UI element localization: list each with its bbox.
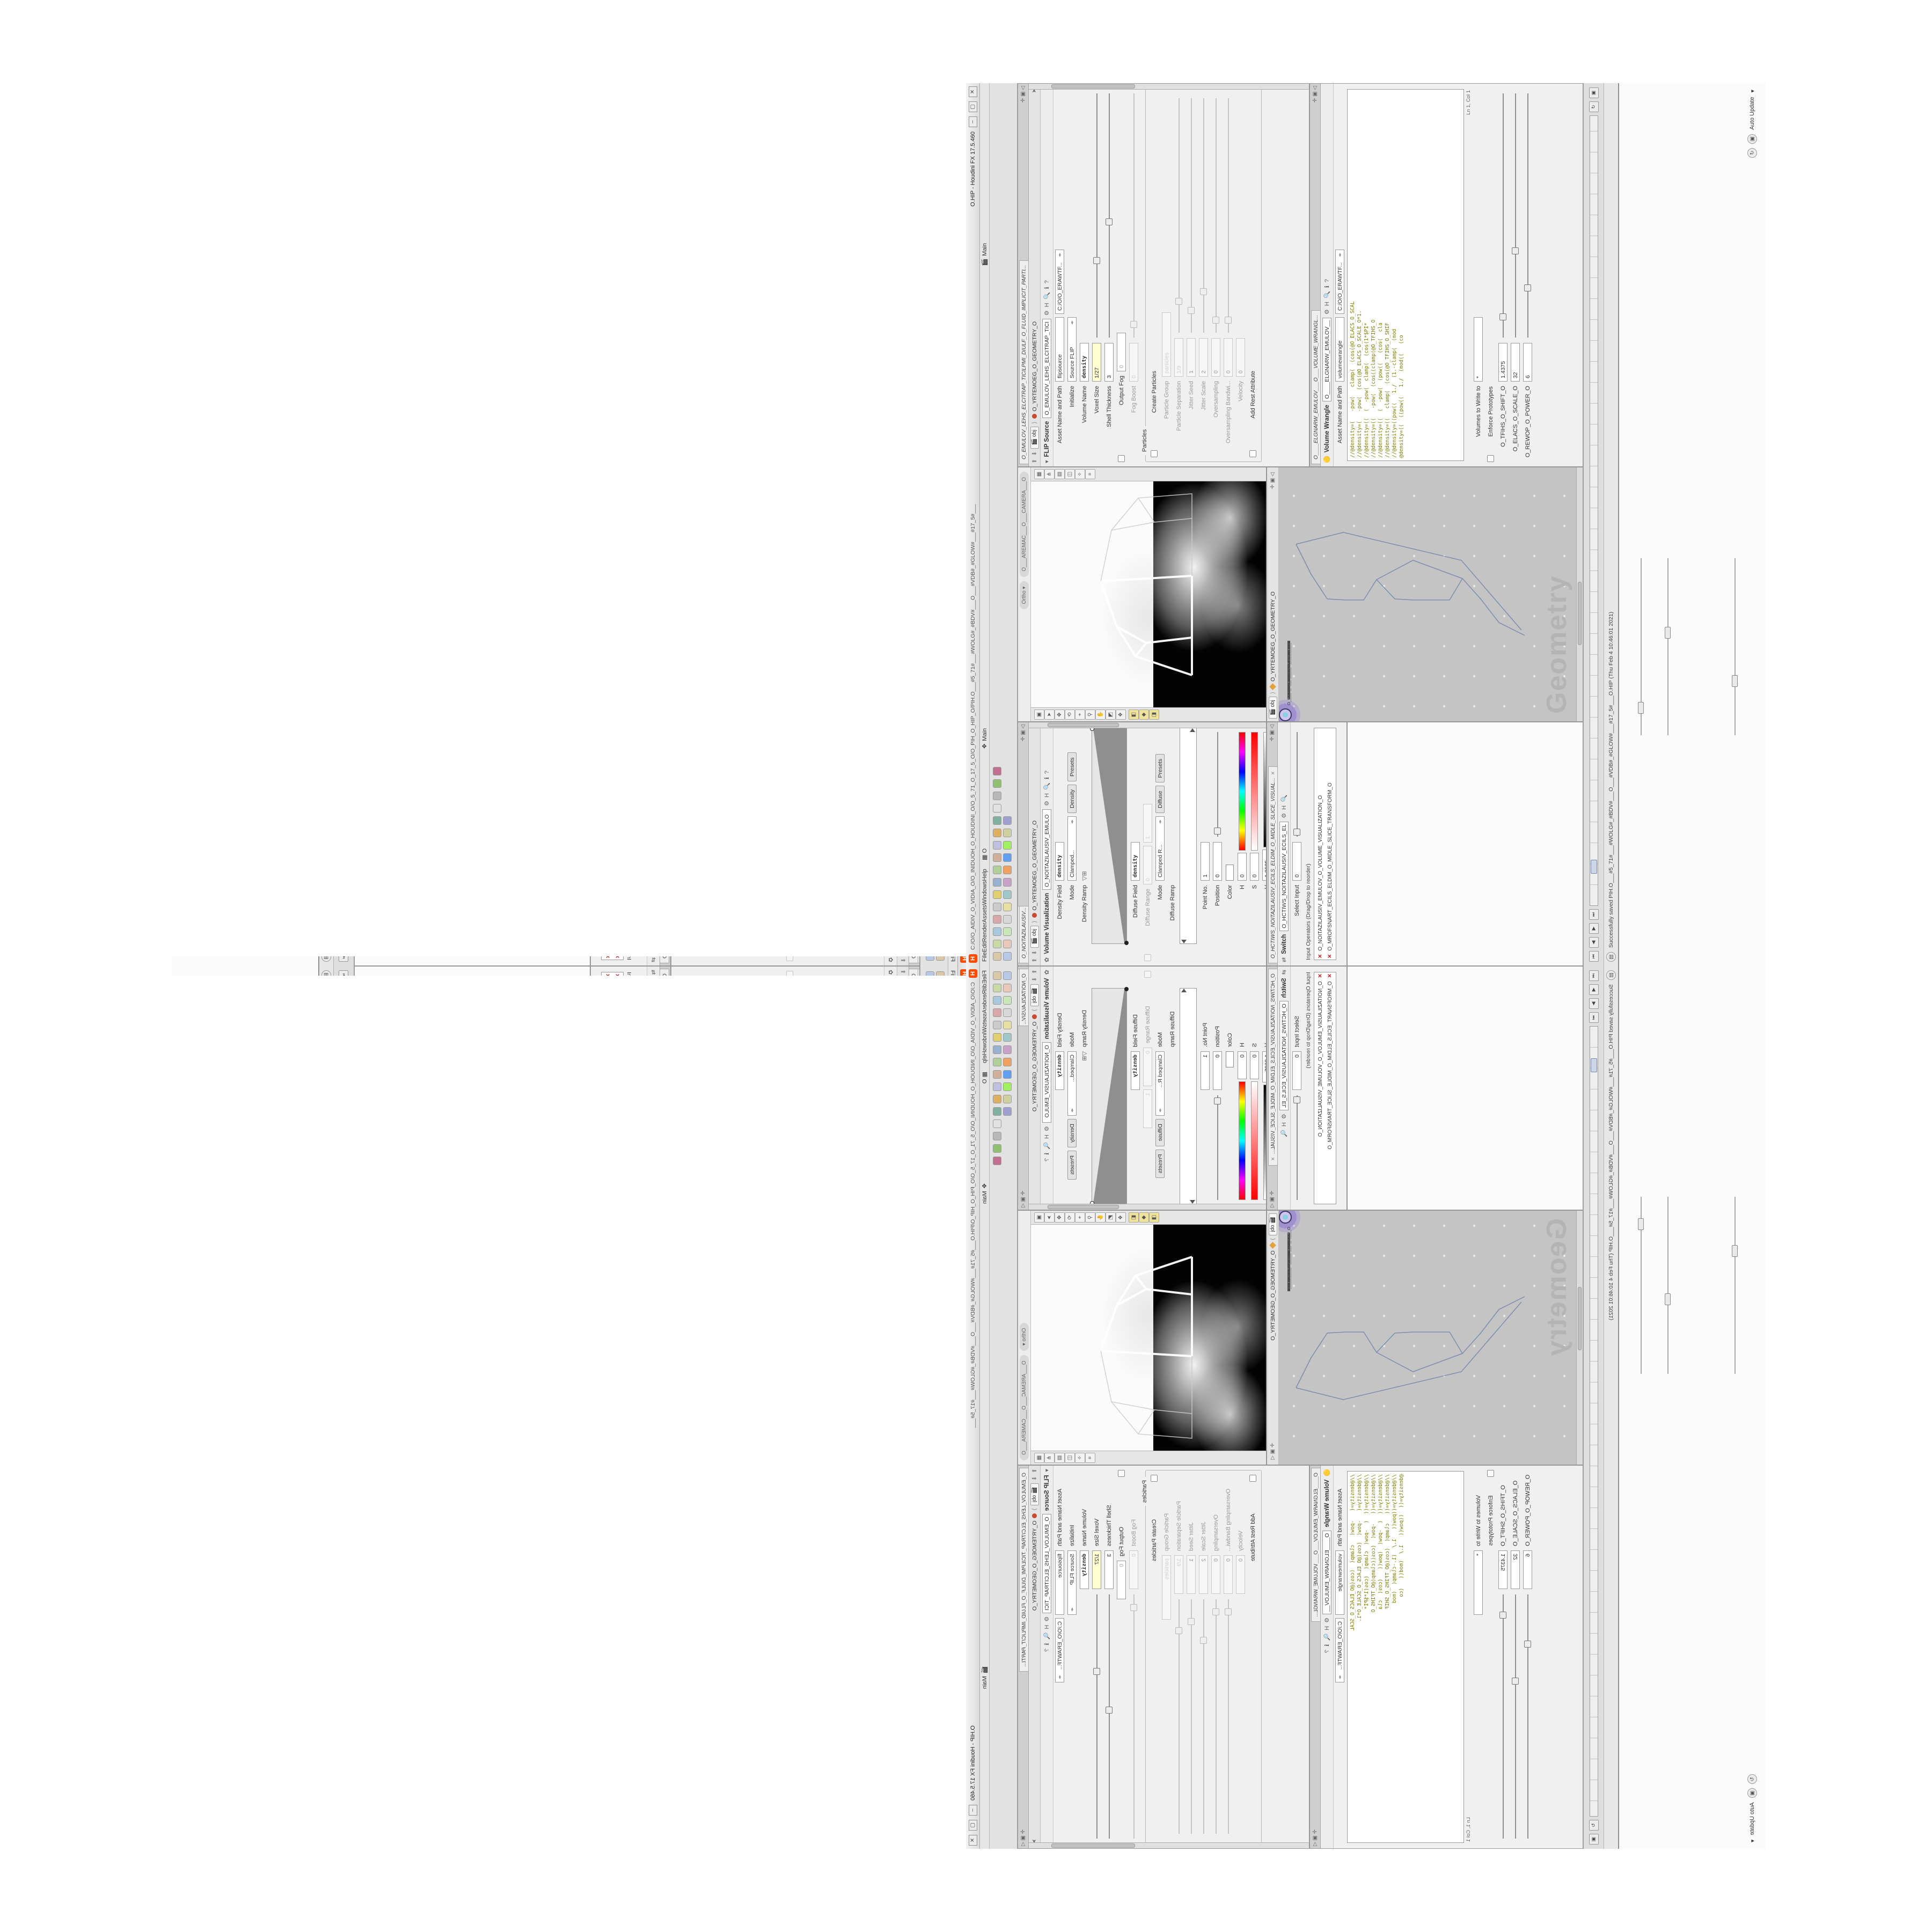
shelf-tool-icon[interactable] bbox=[1003, 866, 1012, 874]
info-icon[interactable]: ℹ bbox=[1043, 1153, 1050, 1155]
ramp-marker[interactable] bbox=[1181, 989, 1187, 992]
display-option-icon[interactable]: ◫ bbox=[1065, 1453, 1075, 1463]
gear-icon[interactable]: ⚙ bbox=[1280, 1114, 1287, 1119]
help-icon[interactable]: ? bbox=[1044, 1158, 1050, 1161]
shelf-tool-icon[interactable] bbox=[1003, 878, 1012, 887]
param-slider[interactable] bbox=[1092, 1594, 1102, 1839]
camera-pill[interactable]: O___AREMAC___O___CAMERA___O bbox=[1020, 1355, 1029, 1460]
breadcrumb-root[interactable]: 🎬obj bbox=[1030, 926, 1039, 948]
diffuse-field-input[interactable]: density bbox=[1131, 1051, 1140, 1090]
shading-mode-icon[interactable]: ◧ bbox=[1129, 709, 1139, 720]
param-input[interactable]: 6 bbox=[1523, 1550, 1532, 1589]
frame-handle[interactable] bbox=[1591, 1058, 1597, 1072]
param-input[interactable]: 0 bbox=[1224, 1555, 1233, 1594]
pane-tab[interactable]: O____ELGNARW_EMULOV___O___VOLUME_WRANGL.… bbox=[1311, 1468, 1320, 1622]
shelf-tool-icon[interactable] bbox=[936, 956, 945, 961]
help-icon[interactable]: ? bbox=[1324, 279, 1330, 282]
pane-controls[interactable]: ✛ ▣ ◁ bbox=[1018, 722, 1028, 743]
search-icon[interactable]: 🔍 bbox=[1280, 1130, 1287, 1137]
pane-controls[interactable]: ✛ ▣ ◁ bbox=[1310, 1827, 1320, 1848]
shelf-tool-icon[interactable] bbox=[993, 996, 1001, 1005]
network-node[interactable]: O_MROFSNART_TLUSER_O_RESULT_TRANSFORM_O bbox=[1279, 708, 1292, 721]
list-item[interactable]: ✕O_MROFSNART_ECILS_ELDIM_O_MIDLE_SLICE_T… bbox=[1325, 974, 1335, 1203]
pane-controls[interactable]: ✛ ▣ ◁ bbox=[1018, 1189, 1028, 1210]
breadcrumb[interactable]: O_YRTEMOEG_O_GEOMETRY_O bbox=[1031, 1521, 1038, 1611]
param-input[interactable]: 1/9 bbox=[1174, 1555, 1183, 1594]
remove-icon[interactable]: ✕ bbox=[1318, 974, 1323, 978]
param-input[interactable]: 0 bbox=[1236, 338, 1245, 377]
param-checkbox[interactable] bbox=[1249, 1475, 1256, 1482]
list-item[interactable]: ✕O_NOITAZILAUSIV_EMULOV_O_VOLUME_VISUALI… bbox=[1315, 729, 1325, 958]
nav-fwd-icon[interactable]: ⬇ bbox=[1031, 1476, 1038, 1481]
shelf-tool-icon[interactable] bbox=[993, 841, 1001, 850]
viewport-tool-icon[interactable]: ⌖ bbox=[1075, 709, 1085, 720]
bg-slider-track[interactable] bbox=[1667, 558, 1668, 735]
param-slider[interactable] bbox=[1174, 98, 1184, 333]
pane-scrollbar[interactable] bbox=[1029, 722, 1266, 728]
shelf-tool-icon[interactable] bbox=[993, 1119, 1001, 1128]
shading-mode-icon[interactable]: ◧ bbox=[1129, 1212, 1139, 1223]
nav-back-icon[interactable]: ⬆ bbox=[1031, 1468, 1038, 1473]
hue-input[interactable]: 0 bbox=[1238, 1051, 1247, 1079]
viewport-tool-icon[interactable]: ⚲ bbox=[1085, 1212, 1095, 1223]
pane-tab[interactable]: O_NOITAZILAUSIV...✕ bbox=[1019, 906, 1028, 963]
param-input[interactable]: 0 bbox=[1211, 338, 1220, 377]
nav-back-icon[interactable]: ⬆ bbox=[1031, 459, 1038, 464]
bg-slider-track[interactable] bbox=[1667, 1197, 1668, 1374]
pane-controls[interactable]: ✛ ▣ ◁ bbox=[1267, 470, 1278, 491]
expand-icon[interactable]: ⊞ bbox=[1081, 871, 1088, 876]
hue-slider[interactable] bbox=[1239, 1081, 1246, 1200]
shelf-tool-icon[interactable] bbox=[926, 956, 934, 961]
viewport-tool-icon[interactable]: ➤ bbox=[1044, 709, 1055, 720]
bg-slider-handle[interactable] bbox=[1665, 627, 1671, 639]
ramp-marker[interactable] bbox=[1190, 728, 1195, 732]
diffuse-range-max[interactable]: 1 bbox=[1143, 804, 1152, 843]
desktop-selector-2[interactable]: 🎬Main bbox=[981, 1666, 988, 1689]
pane-tab[interactable]: O____ELGNARW_EMULOV___O___VOLUME_WRANGL.… bbox=[1311, 310, 1320, 464]
viewport-tool-icon[interactable]: ✥ bbox=[1055, 709, 1065, 720]
ramp-marker[interactable] bbox=[1190, 1200, 1195, 1204]
viewport-tool-icon[interactable]: ➤ bbox=[1044, 1212, 1055, 1223]
network-hscrollbar[interactable] bbox=[1576, 1211, 1583, 1465]
diffuse-mode-select[interactable]: Clamped R... bbox=[1155, 1051, 1165, 1116]
pane-scrollbar[interactable] bbox=[1029, 1842, 1309, 1848]
jump-start-button[interactable]: ⏮ bbox=[1589, 970, 1599, 981]
breadcrumb[interactable]: O_YRTEMOEG_O_GEOMETRY_O bbox=[1031, 821, 1038, 911]
asset-name-input[interactable]: volumewrangle bbox=[1335, 1550, 1344, 1615]
shelf-tool-icon[interactable] bbox=[926, 971, 934, 976]
param-slider[interactable] bbox=[1174, 1599, 1184, 1834]
bg-slider-track[interactable] bbox=[1735, 558, 1736, 735]
enforce-prototypes-checkbox[interactable] bbox=[1487, 1470, 1494, 1477]
param-slider[interactable] bbox=[1092, 93, 1102, 338]
viewport-tool-icon[interactable]: ⟲ bbox=[1065, 1212, 1075, 1223]
camera-icon[interactable]: ▣ bbox=[1747, 134, 1757, 144]
pane-tab[interactable]: O___AREMAC_...✕ bbox=[918, 956, 920, 963]
collapse-icon[interactable]: ▽ bbox=[1081, 1051, 1088, 1056]
shelf-tool-icon[interactable] bbox=[1003, 971, 1012, 980]
shelf-tool-icon[interactable] bbox=[1003, 829, 1012, 837]
shelf-tool-icon[interactable] bbox=[1003, 1107, 1012, 1116]
param-input[interactable]: particles bbox=[1162, 1555, 1171, 1620]
node-name-field[interactable]: O_HCTIWS_NOITAZILAUSIV_ECILS_EL bbox=[1279, 822, 1289, 931]
point-no-input[interactable]: 1 bbox=[1201, 1051, 1210, 1090]
pane-tab[interactable]: O_NOITAZILAUSIV...✕ bbox=[909, 969, 918, 976]
node-name-field[interactable]: O____ELGNARW_EMULOV__ bbox=[1322, 1531, 1331, 1614]
enforce-prototypes-checkbox[interactable] bbox=[1487, 455, 1494, 462]
position-input[interactable]: 0 bbox=[1213, 842, 1222, 881]
remove-icon[interactable]: ✕ bbox=[1327, 974, 1333, 978]
shelf-tool-icon[interactable] bbox=[993, 1132, 1001, 1140]
param-slider[interactable] bbox=[1224, 98, 1233, 333]
pane-controls[interactable]: ✛ ▣ ◁ bbox=[1018, 1827, 1028, 1848]
diffuse-menu-button[interactable]: Diffuse bbox=[1155, 786, 1165, 814]
param-slider[interactable] bbox=[1211, 98, 1221, 333]
jump-end-button[interactable]: ⏭ bbox=[1589, 909, 1599, 920]
info-icon[interactable]: ℹ bbox=[1043, 1643, 1050, 1645]
diffuse-range-checkbox[interactable] bbox=[786, 956, 793, 961]
node-name-field[interactable]: O_EMULOV_LEHS_ELCITRAP_TICI bbox=[1042, 1514, 1051, 1613]
maximize-button[interactable]: ▢ bbox=[969, 101, 977, 112]
sat-slider[interactable] bbox=[1251, 732, 1258, 851]
param-checkbox[interactable] bbox=[1118, 455, 1125, 462]
breadcrumb-root[interactable]: 🎬obj bbox=[1030, 1483, 1039, 1505]
jump-start-button[interactable]: ⏮ bbox=[339, 970, 349, 976]
viewport-tool-icon[interactable]: ◩ bbox=[1106, 709, 1116, 720]
shelf-tool-icon[interactable] bbox=[993, 829, 1001, 837]
shelf-tool-icon[interactable] bbox=[993, 792, 1001, 800]
presets-button[interactable]: Presets bbox=[1155, 1150, 1165, 1179]
param-slider[interactable] bbox=[1224, 1599, 1233, 1834]
bg-slider-handle[interactable] bbox=[1665, 1293, 1671, 1305]
select-input-slider[interactable] bbox=[1292, 1095, 1302, 1200]
shelf-tool-icon[interactable] bbox=[1003, 1008, 1012, 1017]
info-icon[interactable]: ℹ bbox=[1323, 286, 1330, 288]
shelf-tool-icon[interactable] bbox=[993, 1033, 1001, 1042]
mode-select[interactable]: Clamped... bbox=[1067, 816, 1077, 881]
shelf-tool-icon[interactable] bbox=[993, 878, 1001, 887]
ramp-marker[interactable] bbox=[1181, 940, 1187, 943]
param-input[interactable]: 1 bbox=[1187, 1555, 1196, 1594]
list-item[interactable]: ✕O_NOITAZILAUSIV_EMULOV_O_VOLUME_VISUALI… bbox=[1315, 974, 1325, 1203]
search-icon[interactable]: 🔍 bbox=[1043, 292, 1050, 300]
param-input[interactable]: 1.4375 bbox=[1498, 343, 1507, 382]
pane-tab[interactable]: O_NOITAZILAUSIV...✕ bbox=[909, 956, 918, 963]
param-checkbox[interactable] bbox=[1249, 450, 1256, 457]
density-ramp-widget[interactable] bbox=[1092, 728, 1127, 944]
ortho-pill[interactable]: Ortho ▾ bbox=[1020, 581, 1029, 610]
presets-button[interactable]: Presets bbox=[1155, 754, 1165, 783]
param-input[interactable]: density bbox=[1080, 1550, 1089, 1589]
search-icon[interactable]: 🔍 bbox=[1323, 1634, 1330, 1641]
menu-item[interactable]: File bbox=[950, 970, 956, 976]
breadcrumb-root[interactable]: 🎬obj bbox=[1269, 1213, 1277, 1235]
close-tab-icon[interactable]: ✕ bbox=[1270, 771, 1276, 775]
minimize-button[interactable]: – bbox=[969, 1805, 977, 1816]
close-button[interactable]: ✕ bbox=[969, 86, 977, 97]
param-slider[interactable] bbox=[1523, 1594, 1533, 1839]
shelf-tool-icon[interactable] bbox=[1003, 1045, 1012, 1054]
shelf-tool-icon[interactable] bbox=[993, 866, 1001, 874]
shelf-tool-icon[interactable] bbox=[993, 767, 1001, 775]
shelf-tool-icon[interactable] bbox=[993, 915, 1001, 924]
position-slider[interactable] bbox=[1213, 1095, 1223, 1200]
param-slider[interactable] bbox=[1187, 98, 1196, 333]
sat-input[interactable]: 0 bbox=[1250, 853, 1259, 881]
close-tab-icon[interactable]: ✕ bbox=[1270, 1157, 1276, 1161]
asset-path-input[interactable]: C:/O/O_ERAWTF... bbox=[1335, 1618, 1344, 1682]
collapse-icon[interactable]: ▾ bbox=[1043, 460, 1050, 463]
node-name-field[interactable]: O_NOITAZILAUSIV_EMULO bbox=[1042, 809, 1051, 890]
shading-mode-icon[interactable]: ◨ bbox=[1149, 709, 1159, 720]
pane-controls[interactable]: ✛ ▣ ◁ bbox=[1267, 1441, 1278, 1462]
param-input[interactable]: 0 bbox=[1211, 1555, 1220, 1594]
param-input[interactable]: 1/27 bbox=[1092, 1550, 1101, 1589]
shelf-tool-icon[interactable] bbox=[993, 903, 1001, 911]
jump-end-button[interactable]: ⏭ bbox=[1589, 1012, 1599, 1023]
breadcrumb-root[interactable]: 🎬obj bbox=[1269, 697, 1277, 719]
diffuse-range-checkbox[interactable] bbox=[1144, 971, 1151, 978]
diffuse-range-max[interactable]: 1 bbox=[1143, 1089, 1152, 1128]
param-input[interactable]: 0 bbox=[1236, 1555, 1245, 1594]
gear-icon[interactable]: ⚙ bbox=[1043, 1616, 1050, 1622]
auto-update-control[interactable]: ↻ ▣ Auto Update ▾ bbox=[1747, 1774, 1757, 1842]
param-slider[interactable] bbox=[1129, 1594, 1139, 1839]
search-icon[interactable]: 🔍 bbox=[1043, 782, 1050, 790]
shelf-tool-icon[interactable] bbox=[993, 952, 1001, 961]
asset-name-input[interactable]: flipsource bbox=[1055, 317, 1064, 382]
point-no-input[interactable]: 1 bbox=[1201, 842, 1210, 881]
asset-name-input[interactable]: volumewrangle bbox=[1335, 317, 1344, 382]
pane-tab[interactable]: O___AREMAC_...✕ bbox=[918, 969, 920, 976]
remove-icon[interactable]: ✕ bbox=[614, 956, 620, 958]
density-field-input[interactable]: density bbox=[1055, 1051, 1064, 1090]
param-slider[interactable] bbox=[1511, 1594, 1520, 1839]
play-reverse-button[interactable]: ◀ bbox=[1589, 984, 1599, 995]
display-option-icon[interactable]: ▦ bbox=[1034, 1453, 1044, 1463]
select-input-field[interactable]: 0 bbox=[1292, 1051, 1301, 1090]
param-slider[interactable] bbox=[1187, 1599, 1196, 1834]
remove-icon[interactable]: ✕ bbox=[605, 956, 611, 958]
gear-icon[interactable]: ⚙ bbox=[1323, 1618, 1330, 1623]
bg-slider-track[interactable] bbox=[1735, 1197, 1736, 1374]
shelf-tool-icon[interactable] bbox=[1003, 984, 1012, 992]
pane-tab[interactable]: O_HCTIWS_NOITAZILAUSIV_ECILS_ELDIM_O_MID… bbox=[660, 969, 669, 976]
display-option-icon[interactable]: ◫ bbox=[1065, 469, 1075, 479]
display-option-icon[interactable]: ✧ bbox=[1075, 1453, 1085, 1463]
nav-fwd-icon[interactable]: ⬇ bbox=[1031, 451, 1038, 456]
title-bar[interactable]: H C:/O/O_AIDIV_O_VIDIA_O/O_INIDUOH_O_HOU… bbox=[966, 83, 980, 966]
shelf-tool-icon[interactable] bbox=[993, 927, 1001, 936]
shelf-tool-icon[interactable] bbox=[993, 1045, 1001, 1054]
menu-item[interactable]: Windows bbox=[982, 881, 988, 905]
list-item[interactable]: ✕O_NOITAZILAUSIV_EMULOV_O_VOLUME_VISUALI… bbox=[612, 974, 622, 976]
shelf-tool-icon[interactable] bbox=[1003, 853, 1012, 862]
shading-mode-icon[interactable]: ◆ bbox=[1139, 709, 1149, 720]
hue-input[interactable]: 0 bbox=[1238, 853, 1247, 881]
param-input[interactable]: Source FLIP bbox=[1067, 317, 1077, 382]
menu-item[interactable]: File bbox=[950, 956, 956, 962]
shelf-tool-icon[interactable] bbox=[993, 1082, 1001, 1091]
density-menu-button[interactable]: Density bbox=[1067, 1119, 1077, 1147]
shelf-tool-icon[interactable] bbox=[1003, 927, 1012, 936]
shelf-tool-icon[interactable] bbox=[993, 853, 1001, 862]
gear-icon[interactable]: ⚙ bbox=[1323, 309, 1330, 314]
shelf-tool-icon[interactable] bbox=[1003, 1058, 1012, 1066]
jump-start-button[interactable]: ⏮ bbox=[339, 956, 349, 962]
menu-item[interactable]: Edit bbox=[982, 980, 988, 990]
diffuse-mode-select[interactable]: Clamped R... bbox=[1155, 816, 1165, 881]
viewport-tool-icon[interactable]: ⌖ bbox=[1075, 1212, 1085, 1223]
refresh-icon[interactable]: ↻ bbox=[1747, 148, 1757, 158]
pane-scrollbar[interactable] bbox=[1029, 1204, 1266, 1210]
param-checkbox[interactable] bbox=[1151, 450, 1158, 457]
menu-item[interactable]: Render bbox=[982, 923, 988, 942]
display-option-icon[interactable]: ▤ bbox=[1055, 469, 1065, 479]
nav-back-icon[interactable]: ⬆ bbox=[1031, 958, 1038, 963]
menu-item[interactable]: Assets bbox=[982, 1009, 988, 1027]
presets-button[interactable]: Presets bbox=[1067, 752, 1077, 781]
param-slider[interactable] bbox=[1211, 1599, 1221, 1834]
vex-snippet-editor[interactable]: //@density=( -pow( clamp( (cos(@O_ELACS_… bbox=[1347, 89, 1464, 461]
param-slider[interactable] bbox=[1104, 93, 1114, 338]
shelf-tool-icon[interactable] bbox=[936, 971, 945, 976]
shelf-tool-icon[interactable] bbox=[993, 779, 1001, 788]
asset-path-input[interactable]: C:/O/O_ERAWTF... bbox=[1055, 1618, 1064, 1682]
diffuse-range-checkbox[interactable] bbox=[1144, 954, 1151, 961]
color-swatch[interactable] bbox=[1226, 865, 1234, 881]
timeline-track[interactable] bbox=[1590, 1026, 1598, 1817]
pane-tab[interactable]: O_EMULOV_LEHS_ELCITRAP_TICILPMI_DIULF_O_… bbox=[1019, 260, 1028, 464]
ramp-handle-start[interactable] bbox=[1124, 987, 1129, 991]
gear-icon[interactable]: ⚙ bbox=[1043, 1126, 1050, 1131]
remove-icon[interactable]: ✕ bbox=[1318, 954, 1323, 958]
hue-slider[interactable] bbox=[1239, 732, 1246, 851]
param-input[interactable]: 0 bbox=[1129, 343, 1138, 382]
list-item[interactable]: ✕O_MROFSNART_ECILS_ELDIM_O_MIDLE_SLICE_T… bbox=[1325, 729, 1335, 958]
desktop-grid-icon[interactable]: ▦ O bbox=[981, 1072, 988, 1084]
jump-start-button[interactable]: ⏮ bbox=[1589, 951, 1599, 962]
param-slider[interactable] bbox=[1199, 98, 1209, 333]
gear-icon[interactable]: ⚙ bbox=[1043, 801, 1050, 806]
asset-name-input[interactable]: flipsource bbox=[1055, 1550, 1064, 1615]
shelf-tool-icon[interactable] bbox=[1003, 915, 1012, 924]
collapse-icon[interactable]: ▽ bbox=[1081, 876, 1088, 881]
remove-icon[interactable]: ✕ bbox=[605, 974, 611, 976]
help-icon[interactable]: ? bbox=[1044, 771, 1050, 774]
node-name-field[interactable]: O____ELGNARW_EMULOV__ bbox=[1322, 318, 1331, 401]
desktop-selector[interactable]: ✥Main bbox=[981, 1183, 988, 1204]
viewport-tool-icon[interactable]: ◩ bbox=[1106, 1212, 1116, 1223]
param-input[interactable]: density bbox=[1080, 343, 1089, 382]
network-canvas[interactable]: Geometry O_EREHPS_EBUC_O_CUBE_SPHERE_O bbox=[1279, 467, 1576, 721]
shelf-tool-icon[interactable] bbox=[1003, 816, 1012, 825]
viewport-tool-icon[interactable]: ❖ bbox=[1116, 1212, 1126, 1223]
param-input[interactable]: 1 bbox=[1187, 338, 1196, 377]
search-icon[interactable]: 🔍 bbox=[1323, 291, 1330, 298]
pane-controls[interactable]: ✛ ▣ ◁ bbox=[1018, 84, 1028, 105]
shelf-tool-icon[interactable] bbox=[1003, 952, 1012, 961]
menu-item[interactable]: Edit bbox=[982, 942, 988, 952]
network-hscrollbar[interactable] bbox=[1576, 467, 1583, 721]
expand-icon[interactable]: ⊞ bbox=[1081, 1056, 1088, 1060]
display-option-icon[interactable]: ⌗ bbox=[1085, 469, 1095, 479]
search-icon[interactable]: 🔍 bbox=[1280, 795, 1287, 802]
asset-path-input[interactable]: C:/O/O_ERAWTF... bbox=[1335, 250, 1344, 314]
shelf-tool-icon[interactable] bbox=[1003, 890, 1012, 899]
shelf-tool-icon[interactable] bbox=[1003, 940, 1012, 948]
pane-tab[interactable]: O_HCTIWS_NOITAZILAUSIV_ECILS_ELDIM_O_MID… bbox=[1268, 969, 1277, 1166]
viewport-tool-icon[interactable]: ▣ bbox=[1034, 1212, 1044, 1223]
bg-slider-handle[interactable] bbox=[1638, 702, 1644, 714]
shelf-tool-icon[interactable] bbox=[993, 1021, 1001, 1029]
nav-back-icon[interactable]: ⬆ bbox=[899, 969, 906, 974]
shelf-tool-icon[interactable] bbox=[993, 1157, 1001, 1165]
param-input[interactable]: 2 bbox=[1199, 1555, 1208, 1594]
shelf-tool-icon[interactable] bbox=[1003, 1070, 1012, 1079]
menu-item[interactable]: Help bbox=[982, 1051, 988, 1063]
diffuse-field-input[interactable]: density bbox=[1131, 842, 1140, 881]
diffuse-range-min[interactable]: 0 bbox=[1143, 1048, 1152, 1086]
shelf-tool-icon[interactable] bbox=[993, 890, 1001, 899]
asset-path-input[interactable]: C:/O/O_ERAWTF... bbox=[1055, 250, 1064, 314]
shelf-tool-icon[interactable] bbox=[993, 1144, 1001, 1153]
param-checkbox[interactable] bbox=[1118, 1470, 1125, 1477]
pane-tab[interactable]: O_NOITAZILAUSIV...✕ bbox=[1019, 969, 1028, 1026]
refresh-icon[interactable]: ↻ bbox=[1747, 1774, 1757, 1784]
val-input[interactable]: 1.8125 bbox=[1262, 850, 1267, 881]
select-input-slider[interactable] bbox=[1292, 732, 1302, 837]
viewport-tool-icon[interactable]: ⚲ bbox=[1085, 709, 1095, 720]
param-slider[interactable] bbox=[1511, 93, 1520, 338]
shelf-tool-icon[interactable] bbox=[1003, 996, 1012, 1005]
breadcrumb-root[interactable]: 🎬obj bbox=[1030, 984, 1039, 1006]
search-icon[interactable]: 🔍 bbox=[1043, 1633, 1050, 1640]
diffuse-range-checkbox[interactable] bbox=[786, 971, 793, 976]
param-input[interactable]: 0 bbox=[1224, 338, 1233, 377]
title-bar[interactable]: H C:/O/O_AIDIV_O_VIDIA_O/O_INIDUOH_O_HOU… bbox=[966, 966, 980, 1849]
diffuse-range-min[interactable]: 0 bbox=[1143, 846, 1152, 884]
help-icon[interactable]: ? bbox=[1044, 1649, 1050, 1652]
shelf-tool-icon[interactable] bbox=[993, 1008, 1001, 1017]
pane-tab[interactable]: O_HCTIWS_NOITAZILAUSIV_ECILS_ELDIM_O_MID… bbox=[660, 956, 669, 963]
color-swatch[interactable] bbox=[1226, 1051, 1234, 1067]
pane-controls[interactable]: ✛ ▣ ◁ bbox=[1267, 1189, 1277, 1210]
param-input[interactable]: 0 bbox=[1129, 1550, 1138, 1589]
shelf-tool-icon[interactable] bbox=[993, 984, 1001, 992]
network-node[interactable]: O_MROFSNART_TLUSER_O_RESULT_TRANSFORM_O bbox=[1279, 1211, 1292, 1224]
presets-button[interactable]: Presets bbox=[1067, 1151, 1077, 1180]
density-field-input[interactable]: density bbox=[1055, 842, 1064, 881]
menu-item[interactable]: File bbox=[982, 952, 988, 962]
nav-back-icon[interactable]: ⬆ bbox=[899, 958, 906, 963]
shelf-tool-icon[interactable] bbox=[993, 1070, 1001, 1079]
node-name-field[interactable]: O_HCTIWS_NOITAZILAUSIV_ECILS_EL bbox=[1279, 1001, 1289, 1110]
node-name-field[interactable]: O_NOITAZILAUSIV_EMULO bbox=[1042, 1042, 1051, 1123]
select-input-field[interactable]: 0 bbox=[1292, 842, 1301, 881]
nav-fwd-icon[interactable]: ⬇ bbox=[1031, 950, 1038, 955]
param-input[interactable]: 1.4375 bbox=[1498, 1550, 1507, 1589]
display-option-icon[interactable]: ▤ bbox=[1055, 1453, 1065, 1463]
param-slider[interactable] bbox=[1498, 93, 1508, 338]
network-canvas[interactable]: Geometry O_EREHPS_EBUC_O_CUBE_SPHERE_O bbox=[1279, 1211, 1576, 1465]
update-mode-icon[interactable]: ↻ bbox=[1589, 101, 1599, 112]
menu-item[interactable]: Windows bbox=[982, 1027, 988, 1051]
breadcrumb-root[interactable]: 🎬obj bbox=[1030, 427, 1039, 449]
pane-controls[interactable]: ✛ ▣ ◁ bbox=[1267, 722, 1277, 743]
display-option-icon[interactable]: ▦ bbox=[1034, 469, 1044, 479]
